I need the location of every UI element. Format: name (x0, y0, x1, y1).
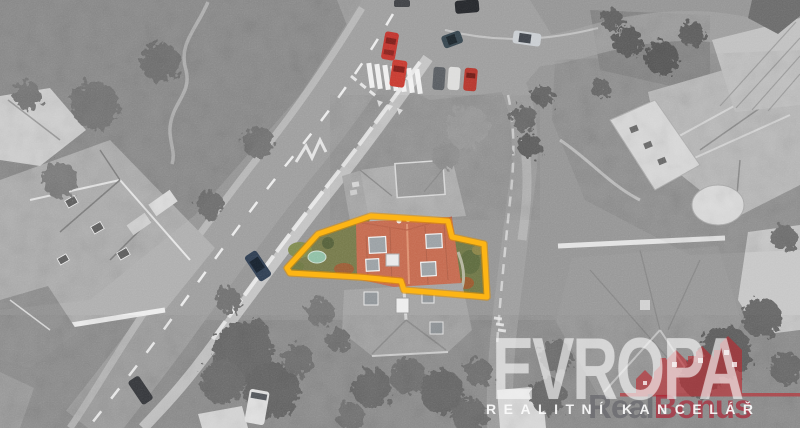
aerial-photo: RealBonus EVROPA REALITNÍ KANCELÁŘ (0, 0, 800, 428)
watermark-tagline: REALITNÍ KANCELÁŘ (486, 401, 761, 417)
